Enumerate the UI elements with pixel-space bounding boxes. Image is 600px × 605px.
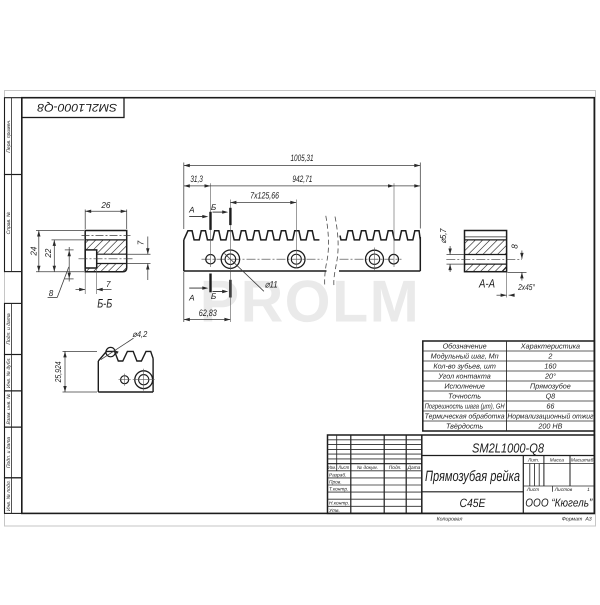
svg-text:Б-Б: Б-Б <box>97 296 112 310</box>
svg-text:Формат: Формат <box>562 517 583 523</box>
svg-text:⌀5,7: ⌀5,7 <box>438 227 448 243</box>
svg-text:Т.контр.: Т.контр. <box>329 487 348 493</box>
svg-text:Характеристика: Характеристика <box>520 342 580 351</box>
svg-text:Инв. № подл.: Инв. № подл. <box>6 480 12 511</box>
svg-text:Прямозубое: Прямозубое <box>530 382 571 391</box>
svg-text:Лит.: Лит. <box>527 458 539 464</box>
svg-text:20°: 20° <box>544 372 556 381</box>
svg-text:А3: А3 <box>584 517 591 523</box>
svg-text:Точность: Точность <box>448 392 481 401</box>
svg-text:66: 66 <box>546 402 554 411</box>
svg-text:Угол контакта: Угол контакта <box>437 372 490 381</box>
svg-text:Нормализационный отжиг: Нормализационный отжиг <box>507 412 593 421</box>
svg-text:Дата: Дата <box>407 465 421 471</box>
svg-text:24: 24 <box>29 246 39 256</box>
svg-text:Обозначение: Обозначение <box>443 342 487 351</box>
svg-text:Разраб.: Разраб. <box>329 472 346 478</box>
svg-text:PROLM: PROLM <box>200 269 421 335</box>
svg-text:Справ. №: Справ. № <box>6 211 12 234</box>
svg-text:Термическая обработка: Термическая обработка <box>425 412 505 421</box>
svg-text:7х125,66: 7х125,66 <box>250 191 280 201</box>
svg-text:Q8: Q8 <box>546 392 556 401</box>
svg-text:Лист: Лист <box>526 487 539 493</box>
svg-text:SM2L1000-Q8: SM2L1000-Q8 <box>36 101 117 113</box>
svg-text:200 НВ: 200 НВ <box>537 422 562 431</box>
svg-text:Взам. инв. №: Взам. инв. № <box>6 393 12 425</box>
svg-text:Утв.: Утв. <box>329 508 340 514</box>
svg-text:Лист: Лист <box>337 465 349 471</box>
svg-text:Н.контр.: Н.контр. <box>329 501 349 507</box>
svg-text:Погрешность шага (µm), GH: Погрешность шага (µm), GH <box>425 402 506 411</box>
svg-text:62,83: 62,83 <box>199 308 218 318</box>
svg-text:Листов: Листов <box>554 487 573 493</box>
svg-text:Модульный шаг, Мп: Модульный шаг, Мп <box>431 352 499 361</box>
svg-text:8: 8 <box>509 244 519 249</box>
svg-text:№ докум.: № докум. <box>357 465 378 471</box>
svg-text:25,924: 25,924 <box>53 361 63 383</box>
svg-text:1005,31: 1005,31 <box>291 153 314 163</box>
svg-text:31,3: 31,3 <box>190 174 203 184</box>
svg-text:⌀11: ⌀11 <box>265 280 278 290</box>
svg-text:26: 26 <box>100 200 110 210</box>
svg-text:Подп. и дата: Подп. и дата <box>6 437 12 469</box>
svg-text:Инв. № дубл.: Инв. № дубл. <box>6 357 12 388</box>
svg-text:А: А <box>188 293 195 302</box>
svg-text:Масса: Масса <box>550 458 565 464</box>
svg-text:⌀4,2: ⌀4,2 <box>132 329 147 339</box>
svg-text:2: 2 <box>547 352 552 361</box>
svg-text:160: 160 <box>544 362 556 371</box>
svg-text:ООО “Кюгель”: ООО “Кюгель” <box>525 498 593 510</box>
svg-text:Масштаб: Масштаб <box>571 458 594 464</box>
svg-text:1: 1 <box>587 487 590 493</box>
svg-text:8: 8 <box>49 288 54 298</box>
svg-text:Кол-во зубьев, шт: Кол-во зубьев, шт <box>433 362 495 371</box>
svg-text:Твёрдость: Твёрдость <box>446 422 483 431</box>
svg-text:22: 22 <box>43 248 53 258</box>
svg-text:2х45°: 2х45° <box>517 282 535 292</box>
svg-text:Подп.: Подп. <box>389 465 402 471</box>
svg-text:C45E: C45E <box>460 496 487 510</box>
svg-text:Перв. примен.: Перв. примен. <box>6 119 12 152</box>
svg-text:Б: Б <box>211 203 217 212</box>
svg-text:Копировал: Копировал <box>437 517 463 523</box>
svg-text:Исполнение: Исполнение <box>444 382 485 391</box>
svg-text:Б: Б <box>211 292 217 301</box>
svg-text:А-А: А-А <box>478 277 495 291</box>
svg-text:SM2L1000-Q8: SM2L1000-Q8 <box>472 441 545 456</box>
svg-text:942,71: 942,71 <box>292 174 312 184</box>
svg-text:Пров.: Пров. <box>329 479 342 485</box>
svg-text:Изм.: Изм. <box>328 465 336 471</box>
svg-text:Прямозубая рейка: Прямозубая рейка <box>425 468 520 485</box>
svg-text:Подп. и дата: Подп. и дата <box>6 313 12 345</box>
svg-text:А: А <box>188 206 195 215</box>
